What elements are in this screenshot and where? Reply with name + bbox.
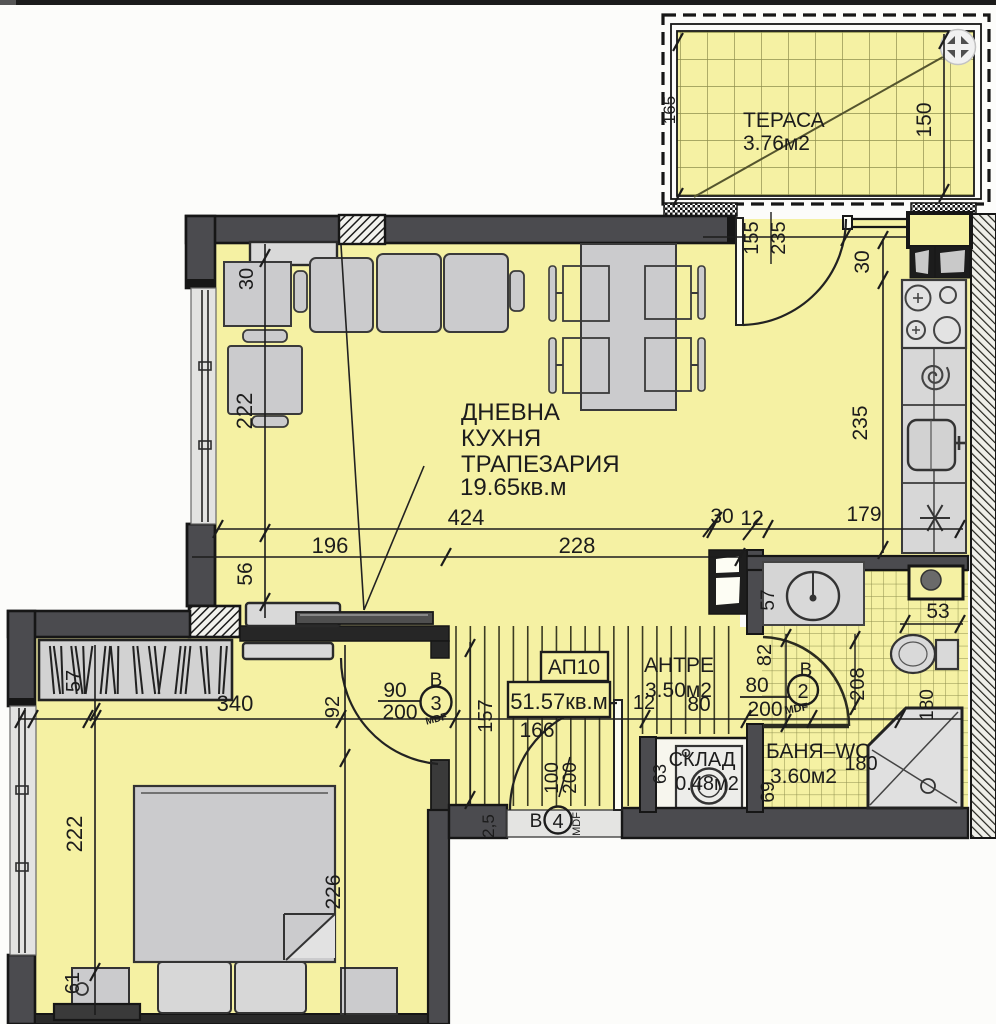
svg-text:0.48м2: 0.48м2 — [675, 773, 739, 795]
svg-text:51.57кв.м: 51.57кв.м — [510, 689, 608, 714]
svg-text:19.65кв.м: 19.65кв.м — [460, 474, 566, 501]
svg-text:MDF: MDF — [571, 812, 583, 836]
svg-text:В: В — [430, 670, 443, 691]
svg-text:4: 4 — [552, 811, 563, 833]
svg-text:235: 235 — [849, 405, 872, 440]
svg-text:80: 80 — [745, 674, 768, 697]
svg-text:30: 30 — [851, 250, 874, 273]
svg-text:В: В — [530, 811, 543, 832]
svg-text:ДНЕВНА: ДНЕВНА — [461, 399, 560, 426]
svg-text:228: 228 — [559, 533, 596, 558]
svg-text:90: 90 — [383, 679, 406, 702]
svg-text:200: 200 — [560, 762, 581, 794]
svg-text:155: 155 — [741, 221, 763, 254]
svg-text:82: 82 — [754, 644, 776, 666]
svg-text:424: 424 — [448, 505, 485, 530]
svg-text:СКЛАД: СКЛАД — [669, 749, 736, 771]
svg-text:226: 226 — [322, 874, 345, 909]
svg-text:3: 3 — [430, 693, 441, 715]
svg-text:180: 180 — [917, 689, 938, 721]
svg-text:166: 166 — [519, 719, 554, 742]
svg-text:196: 196 — [312, 533, 349, 558]
svg-text:3.60м2: 3.60м2 — [770, 765, 837, 788]
svg-text:2,5: 2,5 — [479, 814, 498, 838]
svg-text:3.76м2: 3.76м2 — [743, 132, 810, 155]
svg-text:30: 30 — [236, 268, 258, 290]
svg-text:КУХНЯ: КУХНЯ — [461, 425, 541, 452]
svg-text:208: 208 — [847, 667, 869, 700]
svg-text:30: 30 — [710, 505, 733, 528]
svg-text:ТЕРАСА: ТЕРАСА — [743, 109, 825, 132]
svg-text:53: 53 — [926, 600, 949, 623]
svg-text:В: В — [800, 660, 813, 681]
svg-text:150: 150 — [913, 102, 936, 137]
svg-text:92: 92 — [322, 696, 344, 718]
svg-text:56: 56 — [234, 562, 257, 585]
svg-text:222: 222 — [62, 816, 87, 853]
svg-text:200: 200 — [382, 701, 417, 724]
svg-text:АНТРЕ: АНТРЕ — [644, 654, 714, 677]
svg-text:157: 157 — [475, 699, 497, 732]
svg-text:222: 222 — [232, 393, 257, 430]
svg-text:57: 57 — [758, 589, 779, 610]
svg-text:БАНЯ–WC: БАНЯ–WC — [766, 740, 870, 763]
svg-text:3.50м2: 3.50м2 — [645, 679, 712, 702]
svg-text:57: 57 — [63, 670, 85, 692]
svg-text:165: 165 — [660, 96, 679, 124]
svg-text:179: 179 — [846, 503, 881, 526]
svg-text:340: 340 — [217, 691, 254, 716]
svg-text:200: 200 — [747, 698, 782, 721]
svg-text:АП10: АП10 — [548, 656, 600, 679]
svg-text:63: 63 — [650, 764, 670, 784]
svg-text:2: 2 — [797, 681, 808, 703]
svg-text:61: 61 — [62, 972, 84, 994]
